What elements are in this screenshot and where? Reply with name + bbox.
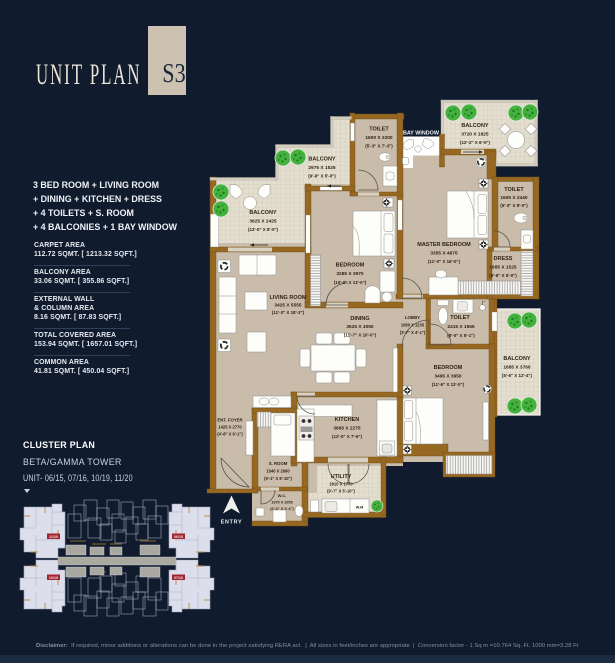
- svg-text:BALCONY: BALCONY: [503, 356, 531, 362]
- svg-text:S. ROOM: S. ROOM: [269, 461, 288, 466]
- svg-text:(5'-3" X 7'-3"): (5'-3" X 7'-3"): [365, 144, 393, 149]
- svg-text:(11'-0" X 16'-0"): (11'-0" X 16'-0"): [428, 259, 461, 264]
- svg-text:LIVING ROOM: LIVING ROOM: [270, 295, 307, 301]
- svg-text:TOILET: TOILET: [504, 187, 524, 193]
- svg-text:1600 X 2200: 1600 X 2200: [365, 135, 393, 141]
- svg-text:3665 X 2275: 3665 X 2275: [333, 426, 361, 432]
- svg-text:2975 X 1525: 2975 X 1525: [308, 165, 336, 171]
- svg-text:KITCHEN: KITCHEN: [335, 417, 359, 423]
- svg-text:BEDROOM: BEDROOM: [434, 365, 463, 371]
- svg-text:(12'-0" X 8'-0"): (12'-0" X 8'-0"): [248, 227, 279, 232]
- svg-text:BALCONY: BALCONY: [308, 157, 336, 163]
- svg-text:UTILITY: UTILITY: [331, 474, 352, 480]
- svg-text:2910 X 1770: 2910 X 1770: [329, 482, 353, 487]
- svg-text:3355 X 4875: 3355 X 4875: [430, 251, 458, 257]
- svg-text:(5'-6" X 12'-4"): (5'-6" X 12'-4"): [502, 373, 533, 378]
- svg-text:ENTRY: ENTRY: [221, 520, 243, 526]
- svg-text:MASTER BEDROOM: MASTER BEDROOM: [417, 242, 471, 248]
- svg-text:(10'-9" X 13'-0"): (10'-9" X 13'-0"): [334, 280, 367, 285]
- svg-text:3285 X 3970: 3285 X 3970: [336, 271, 364, 277]
- svg-text:(12'-0" X 7'-6"): (12'-0" X 7'-6"): [332, 434, 363, 439]
- svg-text:3525 X 3050: 3525 X 3050: [346, 324, 374, 330]
- svg-text:(9'-9" X 5'-0"): (9'-9" X 5'-0"): [308, 174, 336, 179]
- svg-text:(12'-2" X 6'-0"): (12'-2" X 6'-0"): [460, 140, 491, 145]
- svg-text:06/15: 06/15: [174, 535, 183, 539]
- svg-text:3720 X 1825: 3720 X 1825: [461, 132, 489, 138]
- svg-text:11/20: 11/20: [49, 535, 58, 539]
- svg-text:(11'-3" X 18'-3"): (11'-3" X 18'-3"): [272, 310, 305, 315]
- svg-text:LOBBY: LOBBY: [405, 315, 420, 320]
- svg-text:TOILET: TOILET: [450, 315, 470, 321]
- svg-text:(11'-7" X 10'-0"): (11'-7" X 10'-0"): [344, 333, 377, 338]
- svg-text:(4'-8" X 9'-1"): (4'-8" X 9'-1"): [217, 432, 243, 437]
- svg-text:(5'-6" X 5'-0"): (5'-6" X 5'-0"): [489, 273, 517, 278]
- svg-text:(11'-6" X 13'-0"): (11'-6" X 13'-0"): [432, 382, 465, 387]
- svg-text:W.C.: W.C.: [278, 493, 287, 498]
- svg-text:1080 X 1235: 1080 X 1235: [401, 323, 425, 328]
- svg-text:(9'-7" X 5'-10"): (9'-7" X 5'-10"): [327, 489, 355, 494]
- svg-text:TOILET: TOILET: [369, 127, 389, 133]
- svg-text:3625 X 2425: 3625 X 2425: [249, 219, 277, 225]
- svg-text:1425 X 2770: 1425 X 2770: [218, 425, 242, 430]
- svg-text:07/16: 07/16: [174, 576, 183, 580]
- svg-text:1685 X 1525: 1685 X 1525: [489, 265, 517, 271]
- svg-text:3495 X 3950: 3495 X 3950: [434, 374, 462, 380]
- svg-text:ENT. FOYER: ENT. FOYER: [217, 418, 243, 423]
- svg-text:DRESS: DRESS: [494, 256, 513, 262]
- svg-text:1540 X 2690: 1540 X 2690: [266, 469, 290, 474]
- svg-text:10/19: 10/19: [49, 576, 58, 580]
- svg-text:BAY WINDOW: BAY WINDOW: [403, 131, 440, 137]
- svg-text:(6'-6" X 3'-6"): (6'-6" X 3'-6"): [270, 507, 294, 511]
- svg-text:W.M: W.M: [356, 506, 364, 510]
- svg-text:1685 X 3760: 1685 X 3760: [503, 365, 531, 371]
- svg-text:(8'-0" X 5'-1"): (8'-0" X 5'-1"): [447, 333, 475, 338]
- svg-text:BALCONY: BALCONY: [461, 123, 489, 129]
- svg-text:BEDROOM: BEDROOM: [336, 263, 365, 269]
- svg-text:DINING: DINING: [350, 316, 369, 322]
- svg-text:BALCONY: BALCONY: [249, 210, 277, 216]
- svg-text:(5'-1" X 8'-10"): (5'-1" X 8'-10"): [264, 476, 292, 481]
- svg-text:(5'-3" X 8'-0"): (5'-3" X 8'-0"): [500, 203, 528, 208]
- svg-text:1605 X 2440: 1605 X 2440: [500, 195, 528, 201]
- svg-text:2415 X 1555: 2415 X 1555: [447, 324, 475, 330]
- svg-text:(3'-7" X 4'-1"): (3'-7" X 4'-1"): [400, 330, 426, 335]
- svg-text:3425 X 5555: 3425 X 5555: [274, 303, 302, 309]
- svg-text:1975 X 1050: 1975 X 1050: [271, 501, 293, 505]
